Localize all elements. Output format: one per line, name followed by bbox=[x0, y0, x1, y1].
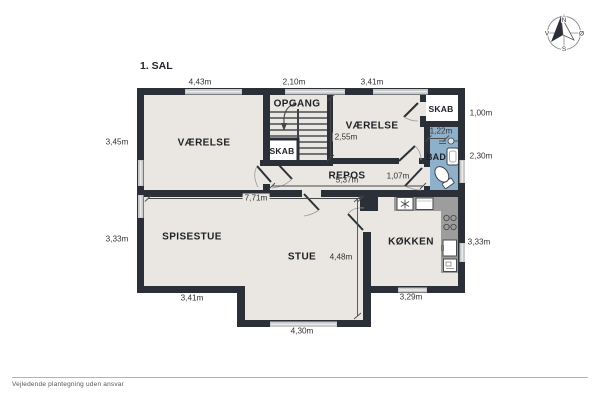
room-label-skab-top-right: SKAB bbox=[429, 104, 454, 114]
room-label-vaerelse-left: VÆRELSE bbox=[178, 138, 231, 149]
dimension-right-skab: 1,00m bbox=[470, 109, 493, 118]
dimension-left-vaerelse: 3,45m bbox=[106, 138, 129, 147]
dimension-repos-width: 5,37m bbox=[336, 176, 359, 185]
floor-plan-drawing: N S V Ø bbox=[0, 0, 600, 400]
dimension-bottom-spisestue: 3,41m bbox=[181, 294, 204, 303]
room-label-vaerelse-right: VÆRELSE bbox=[346, 121, 399, 132]
footer-disclaimer: Vejledende plantegning uden ansvar bbox=[12, 381, 124, 388]
fridge-icon bbox=[397, 198, 413, 211]
dimension-top-right: 3,41m bbox=[361, 78, 384, 87]
dimension-bottom-koekken: 3,29m bbox=[400, 293, 423, 302]
floor-plan-page: N S V Ø 1. SAL VÆRELSE VÆRELSE OPGANG SK… bbox=[0, 0, 600, 400]
dimension-bottom-stue: 4,30m bbox=[291, 327, 314, 336]
footer-divider bbox=[12, 377, 588, 378]
room-label-bad: BAD bbox=[426, 152, 446, 162]
kitchen-sink-icon bbox=[441, 240, 457, 256]
dimension-left-spisestue: 3,33m bbox=[106, 235, 129, 244]
dimension-top-middle: 2,10m bbox=[283, 78, 306, 87]
dimension-stue-height: 4,48m bbox=[328, 253, 355, 262]
room-label-koekken: KØKKEN bbox=[388, 237, 434, 248]
compass-rose: N S V Ø bbox=[545, 15, 584, 54]
dimension-vaerelse-right-height: 2,55m bbox=[333, 133, 360, 142]
counter-sink-icon bbox=[416, 198, 433, 210]
room-label-stue: STUE bbox=[288, 252, 316, 263]
dimension-right-koekken: 3,33m bbox=[468, 238, 491, 247]
dishwasher-icon bbox=[444, 259, 457, 272]
bathroom-sink-icon bbox=[447, 148, 459, 165]
dimension-top-left: 4,43m bbox=[189, 78, 212, 87]
dimension-bad-width: 1,22m bbox=[430, 127, 453, 136]
dimension-right-bad: 2,30m bbox=[470, 152, 493, 161]
dimension-stue-top-width: 7,71m bbox=[243, 194, 270, 203]
compass-north-label: N bbox=[562, 17, 567, 24]
dimension-repos-passage: 1,07m bbox=[387, 172, 410, 181]
room-label-spisestue: SPISESTUE bbox=[162, 232, 222, 243]
room-label-opgang: OPGANG bbox=[274, 99, 321, 110]
compass-east-label: Ø bbox=[579, 31, 584, 38]
page-title: 1. SAL bbox=[140, 60, 173, 72]
compass-west-label: V bbox=[545, 31, 550, 38]
compass-south-label: S bbox=[562, 46, 567, 53]
room-label-skab-under-stairs: SKAB bbox=[270, 146, 295, 156]
